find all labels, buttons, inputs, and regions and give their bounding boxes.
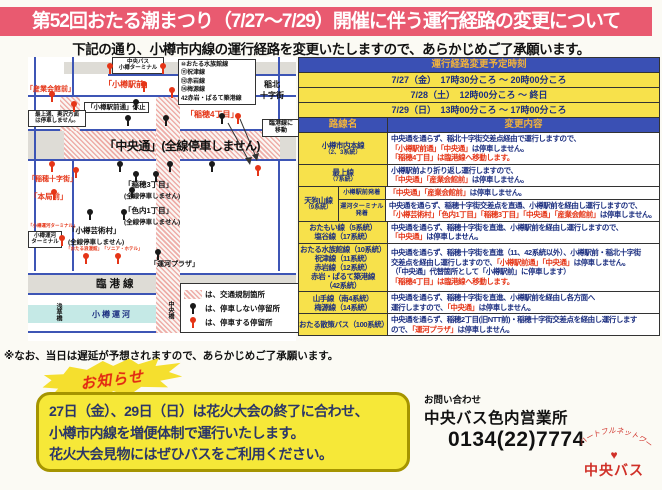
- subroute-label: 小樽駅前発着: [339, 187, 386, 199]
- change-line: 「中央通」は停車しません。: [391, 232, 656, 242]
- terminal-box: 中央バス 小樽ターミナル: [112, 57, 164, 74]
- flyer-page: 第52回おたる潮まつり（7/27～7/29）開催に伴う運行経路の変更について 下…: [0, 0, 662, 490]
- route-name: 小樽市内本線（2、3系統）: [299, 133, 388, 164]
- asakusabashi-label: 浅草橋: [54, 303, 63, 321]
- route-name-line: 梅源線（14系統）: [299, 303, 387, 312]
- change-line: 「小樽駅前通」「中央通」は停車しません。: [391, 144, 656, 154]
- route-list-line: ⑩おたる水族館線: [181, 61, 253, 69]
- route-name-line: おたもい線（5系統）: [299, 223, 387, 232]
- route-name-line: 赤岩線（12系統）: [299, 263, 387, 272]
- bus-stop-icon: [254, 165, 262, 176]
- route-name: 山手線（南4系統）梅源線（14系統）: [299, 292, 388, 313]
- route-name-line: （42系統）: [299, 281, 387, 290]
- bus-stop-icon: [168, 87, 176, 98]
- bus-stop-icon: [124, 115, 132, 126]
- change-text: 交差点を経由し運行しますので、: [391, 258, 496, 267]
- bus-stop-icon: [132, 99, 140, 110]
- change-text: 中央通を通らず、稲穂十字街を直進、小樽駅前を経由し運行しますので、: [391, 223, 623, 232]
- change-text: は停車しません。: [600, 210, 656, 219]
- unga-plaza-label: 「運河プラザ」: [150, 259, 199, 269]
- bus-stop-icon: [218, 113, 226, 124]
- change-line: 中央通を通らず、稲穂十字街を直進、小樽駅前を経由し各方面へ: [391, 293, 656, 303]
- hokko-line1: 稲北: [260, 79, 284, 90]
- regulated-area-swatch: [184, 290, 202, 299]
- bus-stop-icon: [159, 63, 167, 74]
- legend-text: は、交通規制箇所: [205, 289, 265, 300]
- rinko-move-box: 臨港線に 移動: [262, 119, 300, 137]
- route-name-line: 赤岩・ぱるて築港線: [299, 272, 387, 281]
- bus-stop-icon: [152, 171, 160, 182]
- route-map: 中央バス 小樽ターミナル ⑩おたる水族館線⑪祝津線⑫赤岩線⑭梅源線42赤岩・ぱる…: [28, 57, 296, 341]
- otaru-unga-label: 小樽運河: [92, 309, 132, 320]
- page-title: 第52回おたる潮まつり（7/27～7/29）開催に伴う運行経路の変更について: [0, 7, 652, 36]
- change-text: （「中央通」代替箇所として「小樽駅前」に停車します）: [391, 267, 570, 276]
- change-text: 運行しますので、: [391, 303, 447, 312]
- stop-name-red: 「中央通」: [447, 303, 479, 312]
- stop-name-red: 「中央通」「産業会館前」: [389, 188, 470, 197]
- route-row: おたもい線（5系統）塩谷線（17系統）中央通を通らず、稲穂十字街を直進、小樽駅前…: [299, 222, 659, 244]
- contact-office: 中央バス色内営業所: [424, 406, 585, 428]
- route-name: おたる水族館線（10系統）祝津線（11系統）赤岩線（12系統）赤岩・ぱるて築港線…: [299, 244, 388, 291]
- bus-stop-icon: [72, 167, 80, 178]
- route-subrows: 小樽駅前発着「中央通」「産業会館前」は停車しません。運河ターミナル発着中央通を通…: [339, 187, 659, 221]
- change-text: は停車しません。: [426, 232, 482, 241]
- route-name: おたる散策バス（100系統）: [299, 314, 388, 335]
- logo-text: 中央バス: [570, 460, 658, 480]
- subroute-label: 運河ターミナル発着: [339, 200, 386, 221]
- stop-name-red: 「小樽駅前通」「中央通」: [391, 144, 472, 153]
- route-list-box: ⑩おたる水族館線⑪祝津線⑫赤岩線⑭梅源線42赤岩・ぱるて築港線: [178, 59, 256, 105]
- schedule-header: 運行経路変更予定時刻: [299, 58, 659, 73]
- no-stop-icon: [184, 303, 202, 314]
- chuo-dori-label: 「中央通」(全線停車しません): [82, 137, 282, 154]
- bus-stop-icon: [132, 171, 140, 182]
- announcement-line: 小樽市内線を増便体制で運行いたします。: [49, 423, 397, 445]
- route-name-line: 祝津線（11系統）: [299, 254, 387, 263]
- bus-stop-icon: [154, 249, 162, 260]
- unga-terminal-small-label: 「小樽運河ターミナル」: [28, 223, 78, 229]
- bus-stop-icon: [162, 115, 170, 126]
- inaho-jujigai-label: 「稲穂十字街」: [28, 174, 77, 184]
- route-list-line: ⑭梅源線: [181, 86, 253, 94]
- chuo-bus-logo: ハートフルネットワーク ♥ 中央バス: [570, 424, 658, 480]
- change-text: 小樽駅前より折り返し運行しますので、: [391, 166, 517, 175]
- route-table-header: 路線名 変更内容: [299, 118, 659, 133]
- change-text: は停車しません。: [470, 188, 526, 197]
- route-name: 天狗山線（9系統）: [299, 187, 339, 221]
- change-line: 中央通を通らず、稲北十字街交差点経由で運行しますので、: [391, 134, 656, 144]
- announcement-line: 27日（金）、29日（日）は花火大会の終了に合わせ、: [49, 401, 397, 423]
- bus-stop-icon: [82, 253, 90, 264]
- change-line: 「中央通」「産業会館前」は停車しません。: [391, 175, 656, 185]
- rinkosen-label: 臨港線: [96, 276, 137, 291]
- ironai1-line2: (全線停車しません): [124, 216, 180, 226]
- route-name: おたもい線（5系統）塩谷線（17系統）: [299, 222, 388, 243]
- contact-phone: 0134(22)7774: [448, 428, 585, 452]
- change-text: 中央通を通らず、稲北十字街交差点経由で運行しますので、: [391, 134, 580, 143]
- bus-stop-icon: [140, 81, 148, 92]
- change-line: 「稲穂4丁目」は臨港線へ移動します。: [391, 277, 656, 287]
- change-text: 中央通を通らず、稲穂十字街交差点を直通、小樽駅前を経由し運行しますので、: [389, 201, 642, 210]
- rinko-move-line1: 臨港線に: [265, 121, 297, 128]
- route-name-line: 天狗山線: [299, 196, 338, 205]
- bus-stop-icon: [128, 187, 136, 198]
- ironai1-label: 「色内1丁目」 (全線停車しません): [124, 205, 180, 226]
- bus-stop-icon: [86, 209, 94, 220]
- change-text: は停車しません。: [574, 258, 630, 267]
- route-row: おたる散策バス（100系統）中央通を通らず、稲穂2丁目(旧NTT前)・稲穂十字街…: [299, 314, 659, 335]
- route-change-content: 小樽駅前より折り返し運行しますので、「中央通」「産業会館前」は停車しません。: [388, 165, 659, 186]
- heart-icon: ♥: [570, 450, 658, 460]
- route-list-line: 42赤岩・ぱるて築港線: [181, 95, 253, 103]
- change-text: 中央通を通らず、稲穂十字街を直進（11、42系統以外）、小樽駅前・稲北十字街: [391, 248, 641, 257]
- route-name: 最上線（7系統）: [299, 165, 388, 186]
- route-subrow: 運河ターミナル発着中央通を通らず、稲穂十字街交差点を直通、小樽駅前を経由し運行し…: [339, 200, 659, 221]
- stop-name-red: 「稲穂4丁目」は臨港線へ移動します。: [391, 153, 514, 162]
- schedule-row: 7/29（日） 13時00分ころ ～ 17時00分ころ: [299, 103, 659, 117]
- hokko-crossing-label: 稲北 十字街: [260, 79, 284, 101]
- route-change-content: 中央通を通らず、稲穂十字街交差点を直通、小樽駅前を経由し運行しますので、「小樽芸…: [386, 200, 659, 221]
- change-line: 交差点を経由し運行しますので、「小樽駅前通」「中央通」は停車しません。: [391, 258, 656, 268]
- route-subrow: 小樽駅前発着「中央通」「産業会館前」は停車しません。: [339, 187, 659, 200]
- bus-stop-icon: [106, 63, 114, 74]
- route-name-line: 山手線（南4系統）: [299, 294, 387, 303]
- legend-text: は、停車する停留所: [205, 317, 273, 328]
- change-line: 「稲穂4丁目」は臨港線へ移動します。: [391, 153, 656, 163]
- route-name-line: 最上線: [299, 168, 387, 177]
- route-row: 小樽市内本線（2、3系統）中央通を通らず、稲北十字街交差点経由で運行しますので、…: [299, 133, 659, 165]
- bus-stop-icon: [48, 91, 56, 102]
- route-name-header: 路線名: [299, 118, 388, 132]
- stop-name-red: 「小樽芸術村」「色内1丁目」「稲穂3丁目」「中央通」「産業会館前」: [389, 210, 600, 219]
- unga-terminal-box: 小樽運河 ターミナル: [28, 231, 62, 248]
- route-number: （7系統）: [299, 177, 387, 184]
- bus-stop-icon: [116, 161, 124, 172]
- change-text: ので、: [391, 325, 412, 334]
- legend-row: は、停車しない停留所: [184, 301, 296, 315]
- bus-stop-icon: [58, 235, 66, 246]
- route-change-content: 中央通を通らず、稲北十字街交差点経由で運行しますので、「小樽駅前通」「中央通」は…: [388, 133, 659, 164]
- announcement-box: 27日（金）、29日（日）は花火大会の終了に合わせ、小樽市内線を増便体制で運行い…: [36, 392, 410, 472]
- change-text: は停車しません。: [472, 144, 528, 153]
- change-line: （「中央通」代替箇所として「小樽駅前」に停車します）: [391, 267, 656, 277]
- route-list-line: ⑫赤岩線: [181, 78, 253, 86]
- schedule-table: 運行経路変更予定時刻 7/27（金） 17時30分ころ ～ 20時00分ころ7/…: [298, 57, 660, 118]
- bus-stop-icon: [189, 317, 197, 328]
- change-line: 小樽駅前より折り返し運行しますので、: [391, 166, 656, 176]
- change-line: ので、「運河プラザ」は停車しません。: [391, 325, 656, 335]
- contact-label: お問い合わせ: [424, 392, 585, 406]
- route-name-line: 塩谷線（17系統）: [299, 232, 387, 241]
- legend-text: は、停車しない停留所: [205, 303, 280, 314]
- route-change-content: 「中央通」「産業会館前」は停車しません。: [386, 187, 659, 199]
- stop-name-red: 「稲穂4丁目」は臨港線へ移動します。: [391, 277, 514, 286]
- bus-stop-icon: [166, 161, 174, 172]
- legend-row: は、停車する停留所: [184, 315, 296, 329]
- bus-stop-icon: [208, 161, 216, 172]
- route-change-content: 中央通を通らず、稲穂十字街を直進、小樽駅前を経由し運行しますので、「中央通」は停…: [388, 222, 659, 243]
- change-line: 「中央通」「産業会館前」は停車しません。: [389, 188, 656, 198]
- route-number: （9系統）: [299, 205, 338, 212]
- route-row: 山手線（南4系統）梅源線（14系統）中央通を通らず、稲穂十字街を直進、小樽駅前を…: [299, 292, 659, 314]
- route-name-line: おたる水族館線（10系統）: [299, 245, 387, 254]
- logo-arc-text: ハートフルネットワーク: [570, 424, 658, 450]
- route-row: おたる水族館線（10系統）祝津線（11系統）赤岩線（12系統）赤岩・ぱるて築港線…: [299, 244, 659, 292]
- change-line: 中央通を通らず、稲穂十字街交差点を直通、小樽駅前を経由し運行しますので、: [389, 201, 656, 211]
- route-name-line: おたる散策バス（100系統）: [299, 320, 387, 329]
- mogami-note-box: 最上通、奥沢方面 は停車しません。: [28, 110, 86, 127]
- terminal-line2: 小樽ターミナル: [115, 65, 161, 71]
- bus-stop-icon: [114, 253, 122, 264]
- honkyoku-mae-label: 「本局前」: [30, 191, 68, 202]
- route-change-content: 中央通を通らず、稲穂十字街を直進（11、42系統以外）、小樽駅前・稲北十字街交差…: [388, 244, 659, 291]
- legend-row: は、交通規制箇所: [184, 287, 296, 301]
- geijutsu-line2: (全線停車しません): [68, 236, 124, 246]
- bus-stop-icon: [120, 209, 128, 220]
- unga-terminal-line2: ターミナル: [31, 239, 59, 245]
- bus-stop-icon: [234, 113, 242, 124]
- stop-name-red: 「小樽駅前通」「中央通」: [496, 258, 573, 267]
- bus-stop-icon: [189, 303, 197, 314]
- change-line: 中央通を通らず、稲穂十字街を直進、小樽駅前を経由し運行しますので、: [391, 223, 656, 233]
- route-list-line: ⑪祝津線: [181, 69, 253, 77]
- change-text: 中央通を通らず、稲穂十字街を直進、小樽駅前を経由し各方面へ: [391, 293, 595, 302]
- oshirase-badge: お知らせ: [79, 365, 145, 394]
- change-line: 中央通を通らず、稲穂十字街を直進（11、42系統以外）、小樽駅前・稲北十字街: [391, 248, 656, 258]
- hokko-line2: 十字街: [260, 90, 284, 101]
- rinko-move-line2: 移動: [265, 128, 297, 135]
- change-text: は停車しません。: [472, 175, 528, 184]
- stop-name-red: 「中央通」: [391, 232, 426, 241]
- announcement-line: 花火大会見物にはぜひバスをご利用ください。: [49, 444, 397, 466]
- mogami-line2: は停車しません。: [31, 118, 83, 124]
- bus-stop-icon: [48, 161, 56, 172]
- ironai1-line1: 「色内1丁目」: [124, 205, 180, 216]
- route-name-line: 小樽市内本線: [299, 141, 387, 150]
- small-stop-label-2: 「ソニア・ホテル」: [102, 246, 143, 252]
- chuobashi-label: 中央橋: [166, 301, 175, 319]
- inaho4-label: 「稲穂4丁目」: [186, 109, 238, 120]
- change-line: 「小樽芸術村」「色内1丁目」「稲穂3丁目」「中央通」「産業会館前」は停車しません…: [389, 210, 656, 220]
- stop-name-red: 「中央通」「産業会館前」: [391, 175, 472, 184]
- change-text: は停車しません。: [479, 303, 535, 312]
- bus-stop-icon: [50, 189, 58, 200]
- change-line: 運行しますので、「中央通」は停車しません。: [391, 303, 656, 313]
- small-stop-label-1: 「おたる浪漫館」: [66, 246, 102, 252]
- schedule-row: 7/27（金） 17時30分ころ ～ 20時00分ころ: [299, 73, 659, 88]
- schedule-row: 7/28（土） 12時00分ころ ～ 終日: [299, 88, 659, 103]
- route-change-content: 中央通を通らず、稲穂2丁目(旧NTT前)・稲穂十字街交差点を経由し運行しますので…: [388, 314, 659, 335]
- route-row: 天狗山線（9系統）小樽駅前発着「中央通」「産業会館前」は停車しません。運河ターミ…: [299, 187, 659, 222]
- change-text: 中央通を通らず、稲穂2丁目(旧NTT前)・稲穂十字街交差点を経由し運行します: [391, 315, 637, 324]
- map-legend: は、交通規制箇所は、停車しない停留所は、停車する停留所: [180, 283, 300, 333]
- contact-block: お問い合わせ 中央バス色内営業所 0134(22)7774: [424, 392, 585, 452]
- change-content-header: 変更内容: [388, 118, 659, 132]
- route-change-content: 中央通を通らず、稲穂十字街を直進、小樽駅前を経由し各方面へ運行しますので、「中央…: [388, 292, 659, 313]
- svg-text:ハートフルネットワーク: ハートフルネットワーク: [570, 424, 654, 449]
- change-tables: 運行経路変更予定時刻 7/27（金） 17時30分ころ ～ 20時00分ころ7/…: [298, 57, 660, 336]
- stop-name-red: 「運河プラザ」: [412, 325, 458, 334]
- route-row: 最上線（7系統）小樽駅前より折り返し運行しますので、「中央通」「産業会館前」は停…: [299, 165, 659, 187]
- delay-note: ※なお、当日は遅延が予想されますので、あらかじめご了承願います。: [4, 348, 338, 363]
- bus-stop-icon: [70, 101, 78, 112]
- route-table: 路線名 変更内容 小樽市内本線（2、3系統）中央通を通らず、稲北十字街交差点経由…: [298, 118, 660, 336]
- page-subtitle: 下記の通り、小樽市内線の運行経路を変更いたしますので、あらかじめご了承願います。: [0, 38, 662, 58]
- route-number: （2、3系統）: [299, 150, 387, 157]
- stop-icon: [184, 317, 202, 328]
- change-line: 中央通を通らず、稲穂2丁目(旧NTT前)・稲穂十字街交差点を経由し運行します: [391, 315, 656, 325]
- change-text: は停車しません。: [457, 325, 513, 334]
